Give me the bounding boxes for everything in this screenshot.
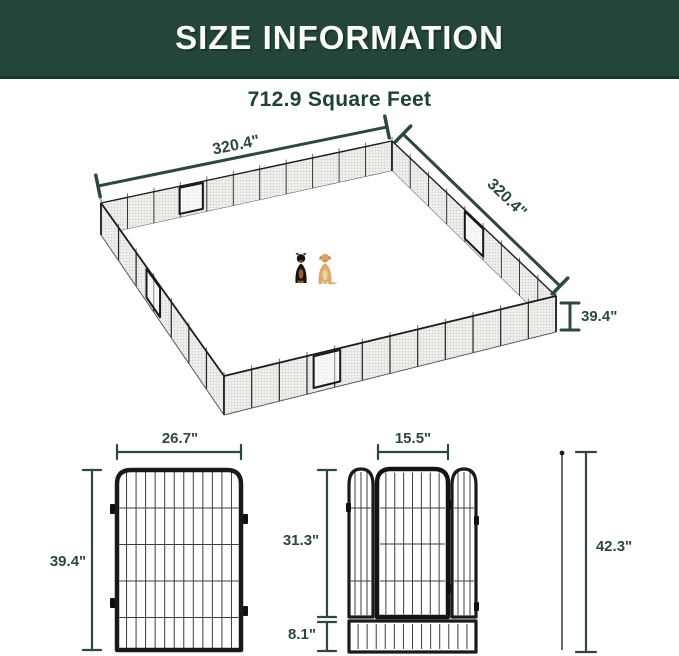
door-height-label: 31.3" bbox=[283, 532, 319, 549]
left-section-wires bbox=[351, 472, 371, 615]
size-illustration: 320.4" 320.4" 39.4" 26.7" bbox=[0, 0, 679, 656]
panel-width-label: 26.7" bbox=[162, 430, 198, 447]
door-height-dimension: 31.3" bbox=[283, 470, 336, 617]
panel-height-dimension: 39.4" bbox=[50, 470, 101, 650]
panel-connector-tabs bbox=[110, 504, 248, 616]
door-wires bbox=[380, 473, 445, 615]
right-section-wires bbox=[454, 472, 474, 615]
total-height-label: 42.3" bbox=[596, 538, 632, 555]
wall-height-label: 39.4" bbox=[581, 308, 617, 325]
panel-width-dimension: 26.7" bbox=[117, 430, 241, 459]
panel-height-label: 39.4" bbox=[50, 553, 86, 570]
bottom-bar-dimension: 8.1" bbox=[288, 622, 336, 651]
bottom-bar-label: 8.1" bbox=[288, 626, 316, 643]
door-width-dimension: 15.5" bbox=[378, 430, 448, 459]
total-height-dimension: 42.3" bbox=[576, 452, 632, 652]
dimension-wall-height: 39.4" bbox=[561, 303, 617, 330]
panel-front-diagram: 26.7" 39.4" bbox=[50, 430, 248, 650]
panel-wires bbox=[120, 472, 239, 648]
side-right-label: 320.4" bbox=[484, 176, 530, 221]
ground-stake bbox=[560, 451, 565, 650]
door-panel-front-diagram: 15.5" 31.3" 8.1" 42.3" bbox=[283, 430, 632, 652]
bottom-band-wires bbox=[358, 624, 467, 649]
door-width-label: 15.5" bbox=[395, 430, 431, 447]
